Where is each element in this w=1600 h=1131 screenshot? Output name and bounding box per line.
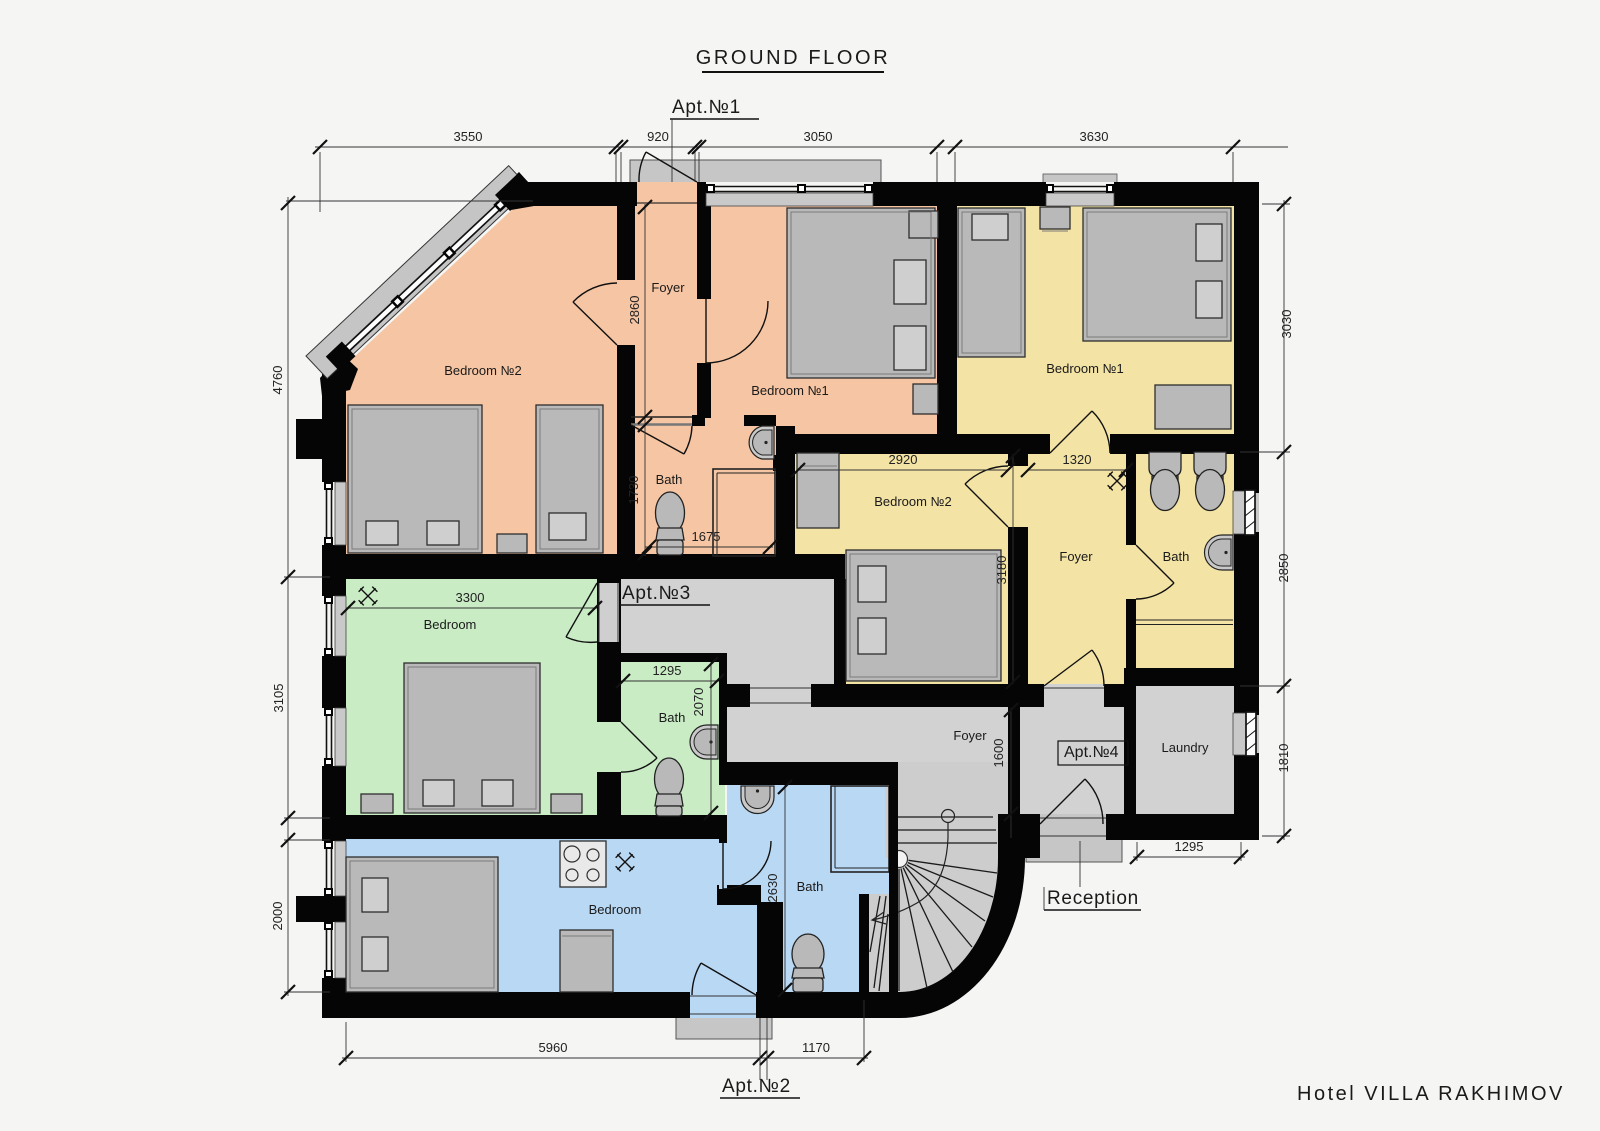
- svg-text:Apt.№2: Apt.№2: [722, 1076, 791, 1097]
- svg-text:2070: 2070: [691, 688, 706, 717]
- svg-text:Bedroom №2: Bedroom №2: [874, 494, 952, 509]
- svg-text:1170: 1170: [802, 1040, 830, 1055]
- svg-text:1675: 1675: [692, 529, 721, 544]
- svg-text:3630: 3630: [1080, 129, 1109, 144]
- svg-text:3550: 3550: [454, 129, 483, 144]
- svg-text:Laundry: Laundry: [1162, 740, 1209, 755]
- svg-text:Foyer: Foyer: [953, 728, 987, 743]
- svg-text:Bedroom: Bedroom: [589, 902, 642, 917]
- svg-text:Hotel VILLA RAKHIMOV: Hotel VILLA RAKHIMOV: [1297, 1083, 1565, 1105]
- svg-text:1295: 1295: [653, 663, 682, 678]
- svg-text:Bedroom: Bedroom: [424, 617, 477, 632]
- svg-text:2630: 2630: [765, 874, 780, 903]
- svg-text:Bedroom №1: Bedroom №1: [1046, 361, 1124, 376]
- svg-text:1295: 1295: [1175, 839, 1204, 854]
- svg-text:2860: 2860: [627, 296, 642, 325]
- svg-text:Apt.№3: Apt.№3: [622, 583, 691, 604]
- svg-text:GROUND FLOOR: GROUND FLOOR: [696, 47, 891, 69]
- svg-text:Bath: Bath: [656, 472, 683, 487]
- svg-text:Bath: Bath: [659, 710, 686, 725]
- svg-text:1600: 1600: [991, 739, 1006, 768]
- svg-text:3030: 3030: [1279, 310, 1294, 339]
- svg-text:3050: 3050: [804, 129, 833, 144]
- svg-text:Foyer: Foyer: [651, 280, 685, 295]
- svg-text:Bedroom №2: Bedroom №2: [444, 363, 522, 378]
- svg-text:Bath: Bath: [797, 879, 824, 894]
- svg-text:1730: 1730: [626, 476, 641, 505]
- svg-text:5960: 5960: [539, 1040, 568, 1055]
- svg-text:920: 920: [647, 129, 669, 144]
- svg-text:Reception: Reception: [1047, 888, 1139, 909]
- svg-text:Apt.№4: Apt.№4: [1064, 744, 1119, 761]
- svg-text:3300: 3300: [456, 590, 485, 605]
- svg-text:Apt.№1: Apt.№1: [672, 97, 741, 118]
- svg-text:1810: 1810: [1276, 744, 1291, 773]
- svg-text:3105: 3105: [271, 684, 286, 713]
- svg-text:4760: 4760: [270, 366, 285, 395]
- svg-text:Bath: Bath: [1163, 549, 1190, 564]
- svg-text:2920: 2920: [889, 452, 918, 467]
- svg-text:3180: 3180: [994, 556, 1009, 585]
- svg-text:Bedroom №1: Bedroom №1: [751, 383, 829, 398]
- svg-text:2850: 2850: [1276, 554, 1291, 583]
- svg-text:1320: 1320: [1063, 452, 1092, 467]
- svg-text:Foyer: Foyer: [1059, 549, 1093, 564]
- svg-text:2000: 2000: [270, 902, 285, 931]
